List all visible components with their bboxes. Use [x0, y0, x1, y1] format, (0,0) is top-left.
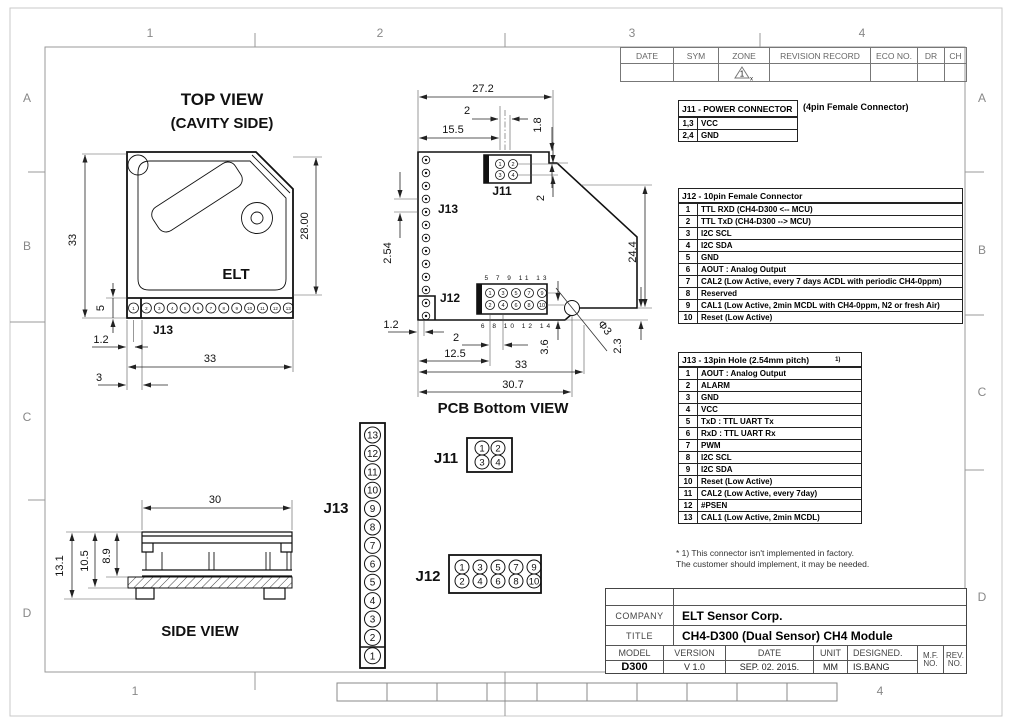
zone-col-1-bottom: 1 [124, 684, 146, 698]
j13-row-desc: AOUT : Analog Output [698, 368, 861, 379]
j13-row-pin: 6 [679, 428, 698, 439]
rev-header-dr: DR [918, 48, 944, 64]
j13-footnote-2: The customer should implement, it may be… [676, 559, 976, 569]
svg-text:1.2: 1.2 [93, 334, 108, 346]
j13-row-desc: I2C SCL [698, 452, 861, 463]
zone-row-a-right: A [971, 91, 993, 105]
j12-row-pin: 1 [679, 204, 698, 215]
j12-row-desc: I2C SDA [698, 240, 962, 251]
j13-row-pin: 4 [679, 404, 698, 415]
pcb-j12-pin-numbers: 13579 246810 [488, 291, 545, 309]
j11-row-desc: VCC [698, 118, 797, 129]
svg-text:33: 33 [515, 359, 527, 371]
elt-logo: ELT [222, 266, 249, 283]
j12-row-pin: 8 [679, 288, 698, 299]
rev-cell-eco [871, 64, 917, 81]
side-view: 30 13.1 10.5 8.9 SIDE VIEW [54, 494, 292, 640]
j13-row-pin: 2 [679, 380, 698, 391]
tb-unit-label: UNIT [814, 646, 847, 661]
j12-row-pin: 10 [679, 312, 698, 323]
svg-text:2: 2 [453, 332, 459, 344]
j12-row-desc: AOUT : Analog Output [698, 264, 962, 275]
svg-text:4: 4 [511, 173, 514, 179]
svg-text:12: 12 [367, 449, 379, 460]
svg-text:1: 1 [132, 306, 135, 311]
j11-table-title: J11 - POWER CONNECTOR [679, 101, 797, 117]
j11-key-wall [484, 155, 489, 183]
tb-model-label: MODEL [606, 646, 663, 661]
tb-version-value: V 1.0 [664, 661, 725, 673]
svg-text:33: 33 [204, 353, 216, 365]
svg-text:4: 4 [171, 306, 174, 311]
tb-version-label: VERSION [664, 646, 725, 661]
j13-table-title: J13 - 13pin Hole (2.54mm pitch)1) [679, 353, 861, 367]
svg-text:2: 2 [511, 162, 514, 168]
j13-footnote-1: * 1) This connector isn't implemented in… [676, 548, 976, 558]
svg-text:9: 9 [531, 563, 536, 574]
j13-row-pin: 8 [679, 452, 698, 463]
j13-row-pin: 11 [679, 488, 698, 499]
diagram-j12-label: J12 [415, 568, 440, 585]
top-view-cavity-outline [138, 155, 290, 290]
zone-row-b-right: B [971, 243, 993, 257]
svg-text:1.2: 1.2 [383, 319, 398, 331]
svg-text:33: 33 [67, 234, 79, 246]
rev-header-zone: ZONE [719, 48, 769, 64]
svg-text:12.5: 12.5 [444, 348, 465, 360]
svg-text:15.5: 15.5 [442, 124, 463, 136]
tb-mf-no: M.F.NO. [918, 646, 944, 673]
svg-text:3: 3 [477, 563, 482, 574]
pcb-j11-label: J11 [492, 184, 512, 198]
j12-row-pin: 7 [679, 276, 698, 287]
svg-text:24.4: 24.4 [627, 241, 639, 262]
cavity-slot [148, 159, 245, 236]
svg-text:1: 1 [498, 162, 501, 168]
svg-text:11: 11 [367, 467, 378, 478]
sensor-hole-outer [242, 203, 273, 234]
zone-row-c-left: C [16, 410, 38, 424]
svg-text:2: 2 [145, 306, 148, 311]
svg-text:4: 4 [495, 458, 500, 469]
zone-row-a-left: A [16, 91, 38, 105]
rev-cell-zone: 1 x [719, 64, 769, 81]
svg-text:8: 8 [223, 306, 226, 311]
j13-row-desc: TxD : TTL UART Tx [698, 416, 861, 427]
j12-row-pin: 3 [679, 228, 698, 239]
top-view: TOP VIEW (CAVITY SIDE) ELT 1234567891011… [67, 90, 322, 390]
svg-text:10: 10 [539, 303, 545, 309]
svg-text:4: 4 [370, 596, 376, 607]
zone-col-1-top: 1 [139, 26, 161, 40]
top-view-dimensions [85, 155, 316, 385]
j12-row-desc: TTL TxD (CH4-D300 --> MCU) [698, 216, 962, 227]
j11-table-note: (4pin Female Connector) [803, 102, 909, 112]
zone-row-b-left: B [16, 239, 38, 253]
revision-record-table: DATE SYM ZONE 1 x REVISION RECORD ECO NO… [620, 47, 967, 82]
j12-connector-table: J12 - 10pin Female Connector 1TTL RXD (C… [678, 188, 963, 324]
j11-block-pin-numbers: 1234 [479, 444, 500, 469]
j11-row-pin: 2,4 [679, 130, 698, 141]
j12-row-desc: CAL1 (Low Active, 2min MCDL with CH4-0pp… [698, 300, 962, 311]
svg-text:9: 9 [235, 306, 238, 311]
svg-text:6: 6 [514, 303, 517, 309]
tb-rev-line2: NO. [948, 660, 962, 668]
tb-designed-value: IS.BANG [848, 661, 917, 673]
svg-text:2: 2 [459, 577, 464, 588]
j12-row-desc: Reserved [698, 288, 962, 299]
j13-row-pin: 12 [679, 500, 698, 511]
svg-text:10: 10 [529, 577, 540, 588]
diagram-j11-label: J11 [434, 450, 458, 467]
j12-row-desc: TTL RXD (CH4-D300 <-- MCU) [698, 204, 962, 215]
j13-row-pin: 5 [679, 416, 698, 427]
top-view-title-1: TOP VIEW [181, 90, 264, 109]
pcb-j12-ext-bottom-numbers: 6 8 10 12 14 [481, 323, 553, 330]
j12-row-desc: GND [698, 252, 962, 263]
svg-text:5: 5 [95, 305, 107, 311]
rev-cell-date [621, 64, 673, 81]
pcb-j13-label: J13 [438, 202, 458, 216]
j12-row-desc: CAL2 (Low Active, every 7 days ACDL with… [698, 276, 962, 287]
j13-row-desc: CAL2 (Low Active, every 7day) [698, 488, 861, 499]
svg-text:1: 1 [479, 444, 484, 455]
j11-connector-table: J11 - POWER CONNECTOR 1,3VCC 2,4GND [678, 100, 798, 142]
svg-text:5: 5 [495, 563, 500, 574]
svg-text:8.9: 8.9 [101, 548, 113, 563]
svg-text:2.54: 2.54 [382, 242, 394, 263]
tb-mf-line2: NO. [923, 660, 937, 668]
j12-table-title: J12 - 10pin Female Connector [679, 189, 962, 203]
drawing-sheet: TOP VIEW (CAVITY SIDE) ELT 1234567891011… [0, 0, 1009, 727]
zone-row-d-left: D [16, 606, 38, 620]
tb-title-label: TITLE [606, 626, 674, 645]
svg-text:5: 5 [184, 306, 187, 311]
j13-title-superscript: 1) [835, 357, 840, 363]
j13-row-pin: 9 [679, 464, 698, 475]
svg-text:3: 3 [501, 291, 504, 297]
rev-header-eco: ECO NO. [871, 48, 917, 64]
j11-row-pin: 1,3 [679, 118, 698, 129]
svg-text:12: 12 [273, 306, 279, 311]
svg-text:1: 1 [459, 563, 464, 574]
top-view-j13-label: J13 [153, 323, 173, 337]
j12-row-pin: 6 [679, 264, 698, 275]
j12-row-pin: 5 [679, 252, 698, 263]
svg-text:3: 3 [370, 615, 376, 626]
tb-empty-label [606, 589, 674, 605]
pcb-j12-ext-top-numbers: 5 7 9 11 13 [484, 275, 549, 282]
svg-text:5: 5 [514, 291, 517, 297]
svg-text:3: 3 [498, 173, 501, 179]
tb-rev-no: REV.NO. [944, 646, 966, 673]
tb-company-label: COMPANY [606, 606, 674, 625]
svg-text:6: 6 [370, 559, 376, 570]
diagram-j13-label: J13 [323, 500, 348, 517]
j13-row-desc: GND [698, 392, 861, 403]
j12-row-pin: 2 [679, 216, 698, 227]
svg-text:2: 2 [495, 444, 500, 455]
svg-text:2: 2 [535, 195, 547, 201]
top-view-title-2: (CAVITY SIDE) [171, 115, 274, 132]
side-view-legs [146, 552, 291, 570]
svg-text:9: 9 [540, 291, 543, 297]
zone-col-4-top: 4 [851, 26, 873, 40]
side-view-title: SIDE VIEW [161, 623, 239, 640]
svg-text:2: 2 [488, 303, 491, 309]
j12-row-pin: 4 [679, 240, 698, 251]
j13-row-desc: VCC [698, 404, 861, 415]
svg-text:10.5: 10.5 [79, 550, 91, 571]
svg-text:9: 9 [370, 504, 376, 515]
svg-text:13: 13 [286, 306, 292, 311]
j13-row-desc: #PSEN [698, 500, 861, 511]
svg-text:10: 10 [247, 306, 253, 311]
j13-row-pin: 3 [679, 392, 698, 403]
rev-cell-sym [674, 64, 718, 81]
j11-block-outline [467, 438, 512, 472]
pcb-j12-label: J12 [440, 291, 460, 305]
rev-cell-dr [918, 64, 944, 81]
svg-text:4: 4 [477, 577, 482, 588]
svg-text:28.00: 28.00 [299, 212, 311, 240]
tb-empty-value [674, 589, 966, 605]
tb-title-value: CH4-D300 (Dual Sensor) CH4 Module [674, 626, 966, 645]
svg-text:2: 2 [370, 633, 376, 644]
svg-text:1.8: 1.8 [532, 117, 544, 132]
svg-text:7: 7 [370, 541, 376, 552]
j12-key-wall [477, 284, 482, 314]
rev-header-date: DATE [621, 48, 673, 64]
svg-text:27.2: 27.2 [472, 83, 493, 95]
svg-text:3: 3 [479, 458, 484, 469]
svg-text:6: 6 [197, 306, 200, 311]
svg-text:2: 2 [464, 105, 470, 117]
rev-header-sym: SYM [674, 48, 718, 64]
svg-text:7: 7 [210, 306, 213, 311]
svg-text:2.3: 2.3 [612, 338, 624, 353]
rev-cell-record [770, 64, 870, 81]
side-view-pcb-hatch [128, 577, 292, 588]
svg-text:7: 7 [527, 291, 530, 297]
zone-col-2-top: 2 [369, 26, 391, 40]
j13-row-desc: I2C SDA [698, 464, 861, 475]
zone-col-4-bottom: 4 [869, 684, 891, 698]
j13-row-desc: PWM [698, 440, 861, 451]
tb-designed-label: DESIGNED. [848, 646, 917, 661]
j12-row-desc: Reset (Low Active) [698, 312, 962, 323]
svg-text:1: 1 [740, 69, 745, 78]
zone-row-c-right: C [971, 385, 993, 399]
j12-row-desc: I2C SCL [698, 228, 962, 239]
top-view-body-outline [127, 152, 293, 318]
svg-text:8: 8 [370, 523, 376, 534]
bottom-cell-strip [337, 683, 837, 701]
svg-text:6: 6 [495, 577, 500, 588]
rev-header-ch: CH [945, 48, 966, 64]
svg-text:x: x [750, 76, 753, 81]
tb-unit-value: MM [814, 661, 847, 673]
revision-triangle-mark: 1 x [733, 65, 755, 81]
svg-text:5: 5 [370, 578, 376, 589]
svg-text:7: 7 [513, 563, 518, 574]
pcb-view-title: PCB Bottom VIEW [438, 400, 570, 417]
j13-row-pin: 1 [679, 368, 698, 379]
svg-text:Φ3: Φ3 [595, 319, 614, 338]
svg-text:11: 11 [260, 306, 265, 311]
j13-row-pin: 10 [679, 476, 698, 487]
svg-text:4: 4 [501, 303, 504, 309]
j13-title-text: J13 - 13pin Hole (2.54mm pitch) [682, 355, 809, 365]
j13-row-pin: 7 [679, 440, 698, 451]
sensor-hole-inner [251, 212, 263, 224]
zone-row-d-right: D [971, 590, 993, 604]
svg-text:13: 13 [367, 431, 379, 442]
svg-text:1: 1 [370, 651, 376, 662]
svg-text:3: 3 [158, 306, 161, 311]
tb-model-value: D300 [606, 661, 663, 673]
svg-text:8: 8 [513, 577, 518, 588]
svg-text:8: 8 [527, 303, 530, 309]
j13-row-desc: RxD : TTL UART Rx [698, 428, 861, 439]
svg-text:13.1: 13.1 [54, 555, 66, 576]
rev-cell-ch [945, 64, 966, 81]
side-view-dim-labels: 30 13.1 10.5 8.9 [54, 494, 221, 577]
j13-row-pin: 13 [679, 512, 698, 523]
title-block: COMPANYELT Sensor Corp. TITLECH4-D300 (D… [605, 588, 967, 674]
tb-date-value: SEP. 02. 2015. [726, 661, 813, 673]
svg-text:30.7: 30.7 [502, 379, 523, 391]
rev-header-record: REVISION RECORD [770, 48, 870, 64]
pcb-dimensions [388, 97, 645, 392]
j11-row-desc: GND [698, 130, 797, 141]
svg-text:3: 3 [96, 372, 102, 384]
svg-text:1: 1 [488, 291, 491, 297]
pin-diagrams: 13121110987654321 J13 J11 1234 J12 13579… [323, 423, 541, 668]
tb-date-label: DATE [726, 646, 813, 661]
svg-text:30: 30 [209, 494, 221, 506]
svg-text:10: 10 [367, 486, 379, 497]
j12-row-pin: 9 [679, 300, 698, 311]
tb-company-value: ELT Sensor Corp. [674, 606, 966, 625]
j13-row-desc: Reset (Low Active) [698, 476, 861, 487]
j13-row-desc: ALARM [698, 380, 861, 391]
pcb-bottom-view: 1234 J11 J13 13579 246810 J12 5 7 9 11 1… [382, 83, 652, 417]
j13-row-desc: CAL1 (Low Active, 2min MCDL) [698, 512, 861, 523]
svg-text:3.6: 3.6 [539, 339, 551, 354]
j13-connector-table: J13 - 13pin Hole (2.54mm pitch)1) 1AOUT … [678, 352, 862, 524]
zone-col-3-top: 3 [621, 26, 643, 40]
